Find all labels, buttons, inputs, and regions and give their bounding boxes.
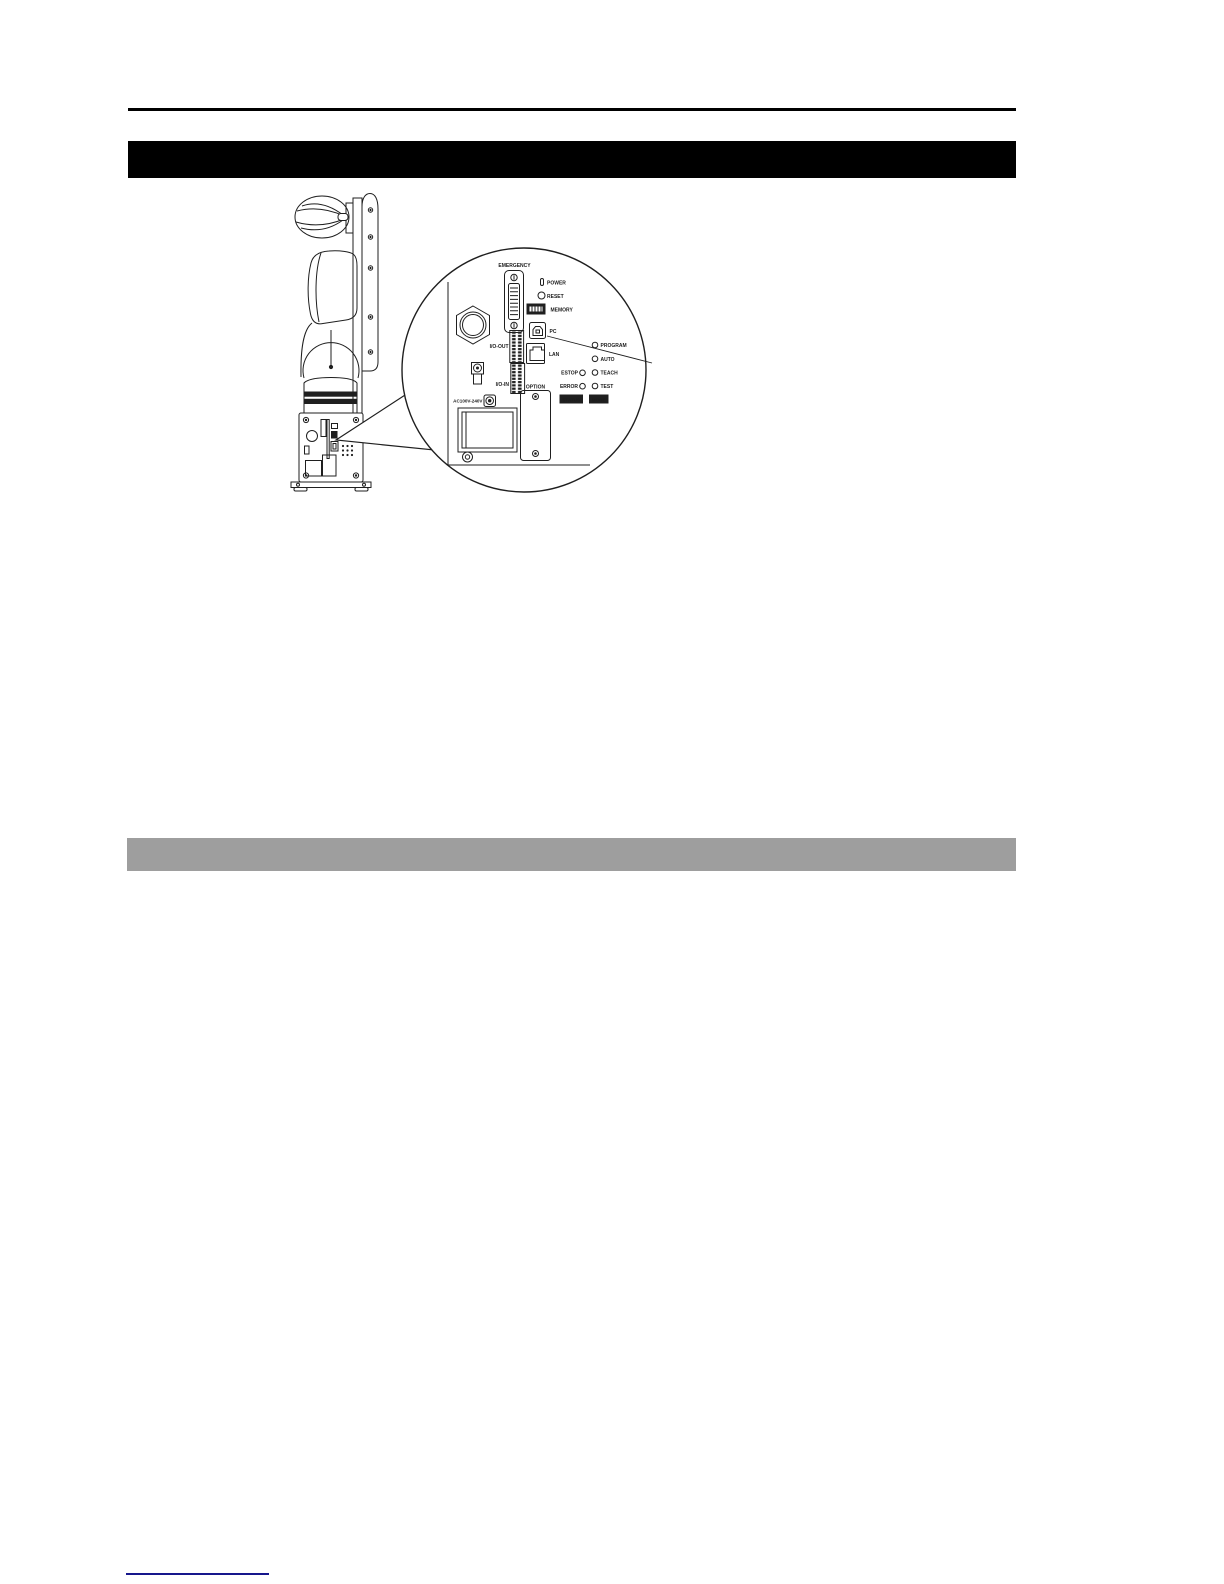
program-label: PROGRAM: [601, 343, 627, 349]
auto-label: AUTO: [601, 357, 615, 363]
mast-screws: [368, 208, 372, 354]
power-label: POWER: [547, 281, 566, 287]
memory-label: MEMORY: [551, 308, 574, 314]
io-in-label: I/O-IN: [496, 382, 510, 388]
header-rule: [128, 108, 1016, 111]
option-label: OPTION: [526, 385, 546, 391]
base-vent-dots: [342, 445, 353, 456]
robot-connector-panel-diagram: EMERGENCY POWER RESET: [270, 185, 670, 495]
section-title-bar-black: [128, 141, 1016, 178]
subsection-bar-gray: [127, 838, 1016, 871]
teach-label: TEACH: [601, 371, 619, 377]
reset-label: RESET: [547, 294, 564, 300]
io-out-label: I/O-OUT: [490, 344, 509, 350]
robot-upper-link: [308, 251, 357, 324]
lan-label: LAN: [549, 352, 560, 358]
mode-box-label: MODE: [592, 397, 606, 402]
robot-head: [295, 196, 353, 238]
ac-power-label: AC100V-240V: [453, 399, 483, 404]
pc-label: PC: [550, 329, 557, 335]
robot-arm-drawing: [291, 194, 378, 492]
robot-base-box: [299, 413, 363, 482]
footer-link-underline: [126, 1573, 269, 1575]
document-page: EMERGENCY POWER RESET: [0, 0, 1224, 1584]
emergency-label: EMERGENCY: [498, 263, 531, 269]
robot-base-neck: [304, 378, 357, 414]
estop-label: ESTOP: [561, 371, 579, 377]
robot-shoulder-joint: [301, 323, 359, 378]
robot-feet: [291, 482, 371, 491]
status-box-label: STATUS: [562, 397, 580, 402]
error-label: ERROR: [560, 384, 578, 390]
test-label: TEST: [601, 384, 614, 390]
